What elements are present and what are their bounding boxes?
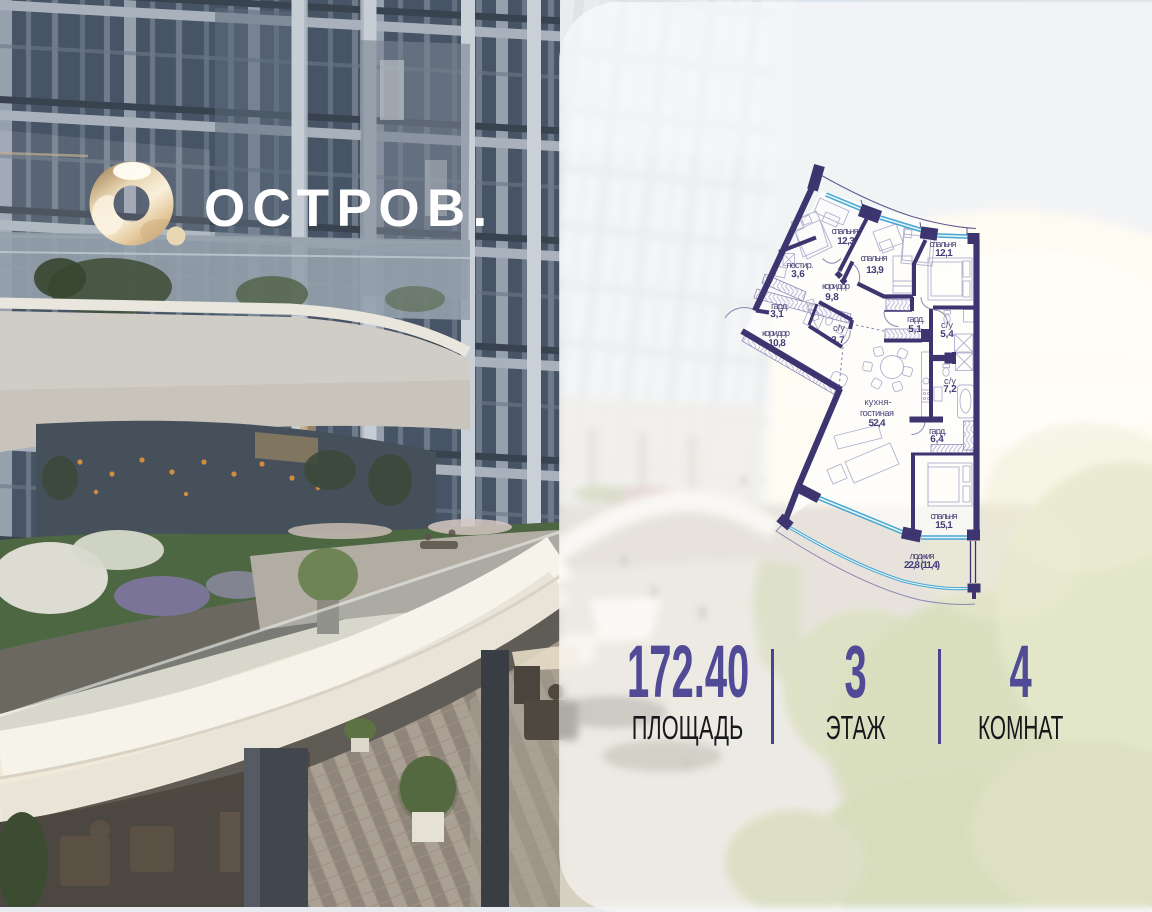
svg-text:9,8: 9,8 — [825, 292, 839, 303]
svg-text:5,1: 5,1 — [908, 324, 922, 335]
svg-text:коридор: коридор — [822, 281, 850, 291]
svg-text:с/у: с/у — [833, 323, 845, 333]
svg-text:3,7: 3,7 — [831, 335, 845, 346]
svg-text:7,2: 7,2 — [943, 384, 957, 395]
svg-text:гард.: гард. — [907, 314, 925, 324]
svg-text:3,1: 3,1 — [770, 309, 784, 320]
svg-text:22,8 (11,4): 22,8 (11,4) — [904, 560, 940, 571]
svg-text:52,4: 52,4 — [869, 418, 887, 429]
svg-text:3,6: 3,6 — [791, 269, 805, 280]
svg-text:12,3: 12,3 — [837, 236, 855, 247]
svg-text:гостиная: гостиная — [860, 408, 894, 418]
svg-text:10,8: 10,8 — [768, 338, 786, 349]
svg-text:6,4: 6,4 — [930, 434, 944, 445]
svg-text:12,1: 12,1 — [935, 248, 953, 259]
svg-text:спальня: спальня — [861, 253, 888, 263]
svg-text:5,4: 5,4 — [940, 329, 954, 340]
svg-text:13,9: 13,9 — [866, 265, 884, 276]
svg-text:спальня: спальня — [832, 226, 859, 236]
svg-text:кухня-: кухня- — [865, 397, 892, 407]
svg-text:15,1: 15,1 — [935, 520, 953, 531]
svg-text:коридор: коридор — [762, 328, 790, 338]
